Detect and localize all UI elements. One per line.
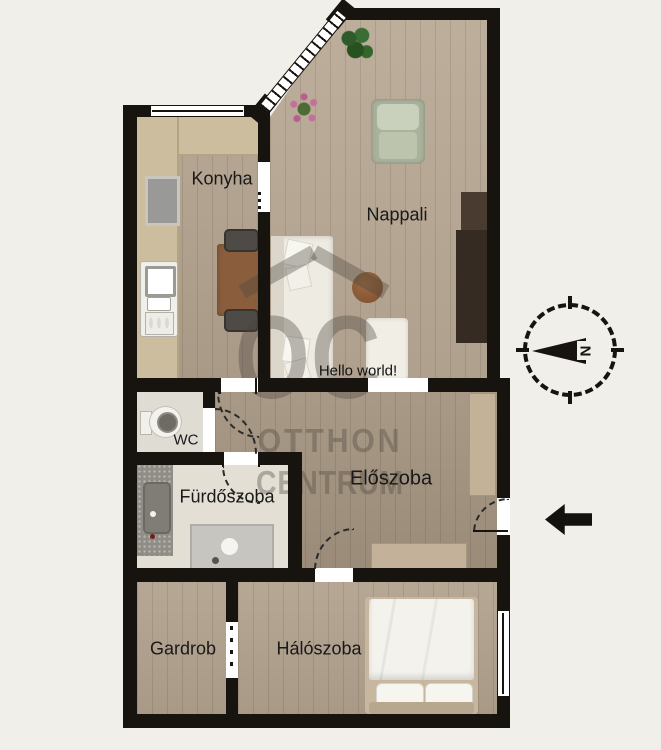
bedroom-door bbox=[315, 568, 353, 582]
wall-mid-horizontal bbox=[123, 378, 510, 392]
wall-wc-bath bbox=[123, 452, 302, 465]
vanity-faucet bbox=[150, 511, 156, 517]
shower-drain bbox=[221, 538, 238, 555]
compass-tick-north bbox=[568, 296, 572, 309]
flower-plant bbox=[288, 93, 320, 125]
room-label-eloszoba: Előszoba bbox=[350, 468, 432, 491]
wall-bath-right bbox=[288, 452, 302, 582]
shoe-cabinet bbox=[371, 543, 467, 570]
stove-drawer bbox=[147, 297, 171, 311]
bathroom-door-jamb bbox=[222, 452, 224, 467]
vanity-dot bbox=[150, 534, 155, 539]
wall-kitchen-living bbox=[258, 117, 270, 378]
compass-tick-west bbox=[516, 348, 529, 352]
hall-wardrobe bbox=[469, 393, 496, 496]
hello-world-text: Hello world! bbox=[319, 363, 397, 380]
bedroom-window-line bbox=[502, 613, 504, 694]
bathroom-door-jamb bbox=[258, 452, 260, 467]
entrance-arrow-icon bbox=[545, 504, 592, 535]
vanity-basin bbox=[143, 482, 171, 534]
kitchen-living-door-ticks bbox=[258, 192, 261, 210]
gardrob-door-ticks bbox=[230, 626, 233, 674]
compass-tick-east bbox=[611, 348, 624, 352]
corner-plant bbox=[341, 27, 373, 65]
floorplan: OC OTTHON CENTRUM Konyha Nappali WC Fürd… bbox=[0, 0, 661, 750]
toilet-bowl-inner bbox=[157, 412, 178, 433]
tv-cabinet-upper bbox=[461, 192, 487, 230]
dish-rack bbox=[145, 312, 174, 335]
room-label-wc: WC bbox=[174, 432, 199, 449]
kitchen-hall-door bbox=[219, 378, 258, 392]
room-label-konyha: Konyha bbox=[191, 169, 252, 190]
room-label-nappali: Nappali bbox=[366, 205, 427, 226]
kitchen-counter-left bbox=[137, 117, 179, 378]
room-label-haloszoba: Hálószoba bbox=[276, 639, 361, 660]
kitchen-sink bbox=[145, 266, 176, 297]
wall-outer-top bbox=[338, 8, 500, 20]
room-label-gardrob: Gardrob bbox=[150, 639, 216, 660]
living-hall-opening bbox=[368, 378, 428, 392]
bed-duvet bbox=[369, 599, 474, 680]
wall-outer-left bbox=[123, 105, 137, 728]
wall-outer-bottom bbox=[123, 714, 510, 728]
tv-cabinet-lower bbox=[456, 230, 487, 343]
shower-dot bbox=[212, 557, 219, 564]
compass-north-letter: N bbox=[577, 346, 594, 357]
kitchen-window-line bbox=[152, 110, 243, 112]
fridge bbox=[145, 176, 180, 226]
wall-outer-right-upper bbox=[487, 8, 500, 392]
entrance-door-leaf bbox=[473, 530, 508, 532]
armchair-back-cushion bbox=[377, 104, 419, 130]
wall-right-mid bbox=[497, 392, 510, 568]
bed-headboard bbox=[369, 702, 474, 714]
compass-tick-south bbox=[568, 391, 572, 404]
room-label-furdoszoba: Fürdőszoba bbox=[179, 487, 274, 508]
wc-door bbox=[203, 408, 215, 452]
dining-chair-top bbox=[224, 229, 259, 252]
armchair-seat bbox=[379, 132, 417, 159]
